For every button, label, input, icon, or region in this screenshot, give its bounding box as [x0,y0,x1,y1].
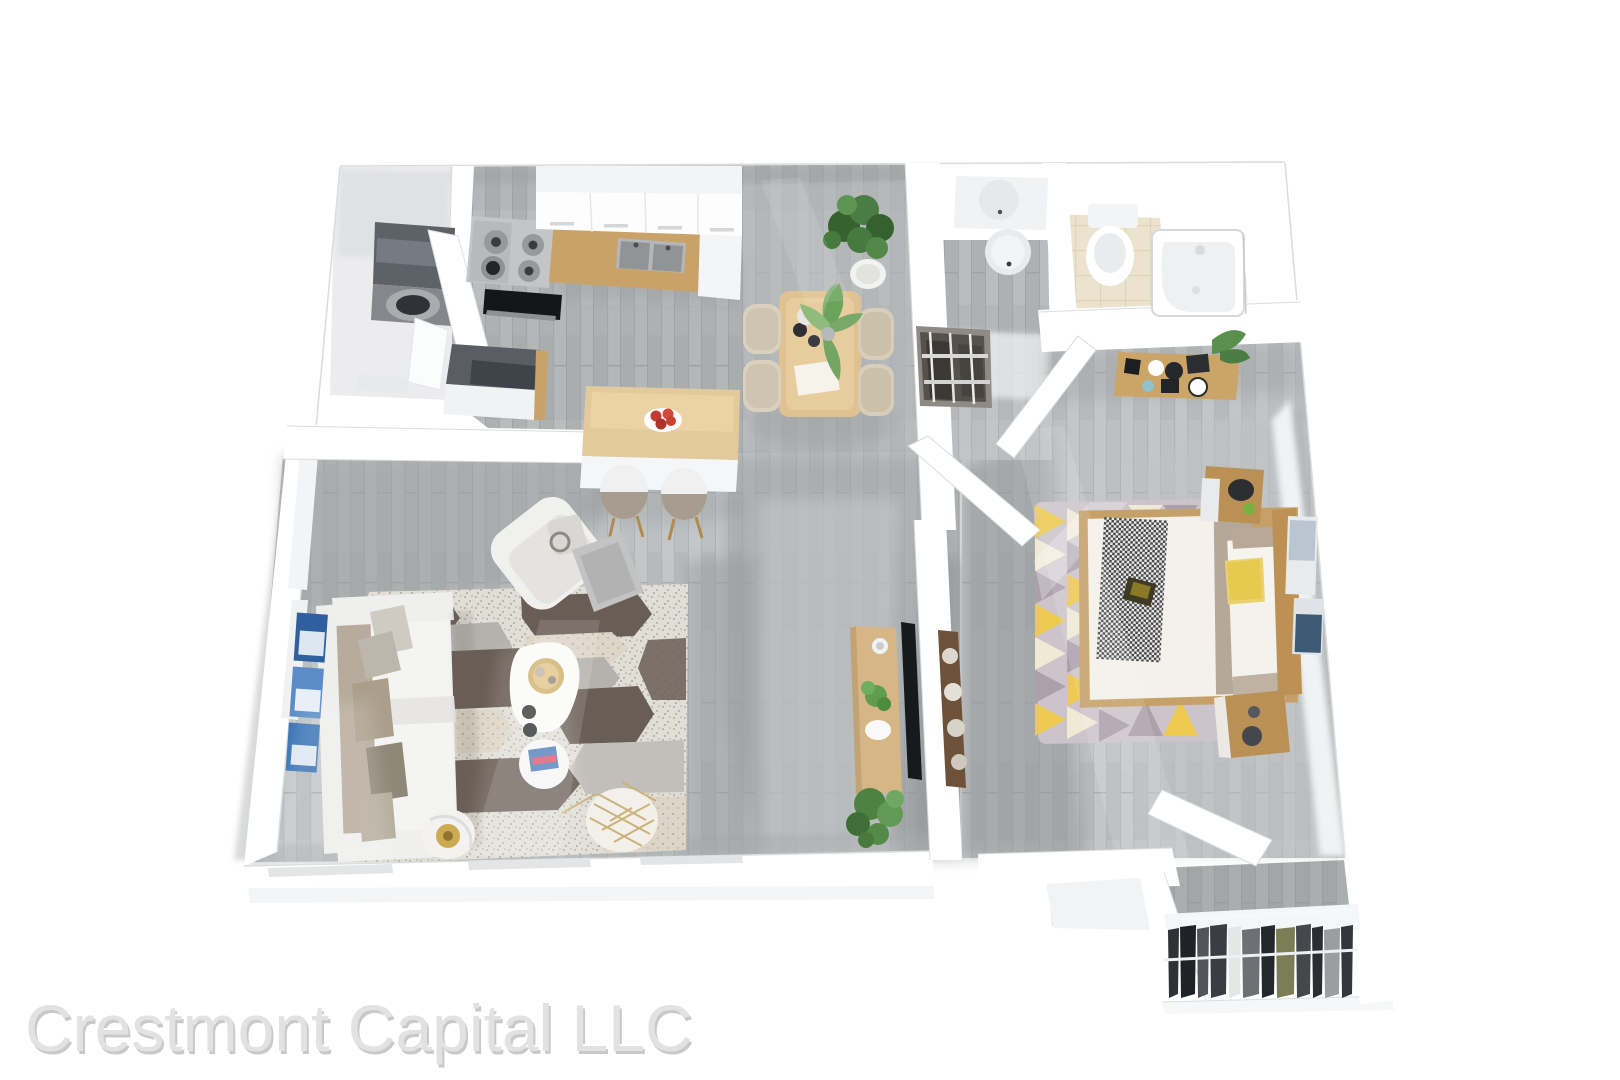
svg-text:Crestmont Capital LLC: Crestmont Capital LLC [25,991,693,1065]
